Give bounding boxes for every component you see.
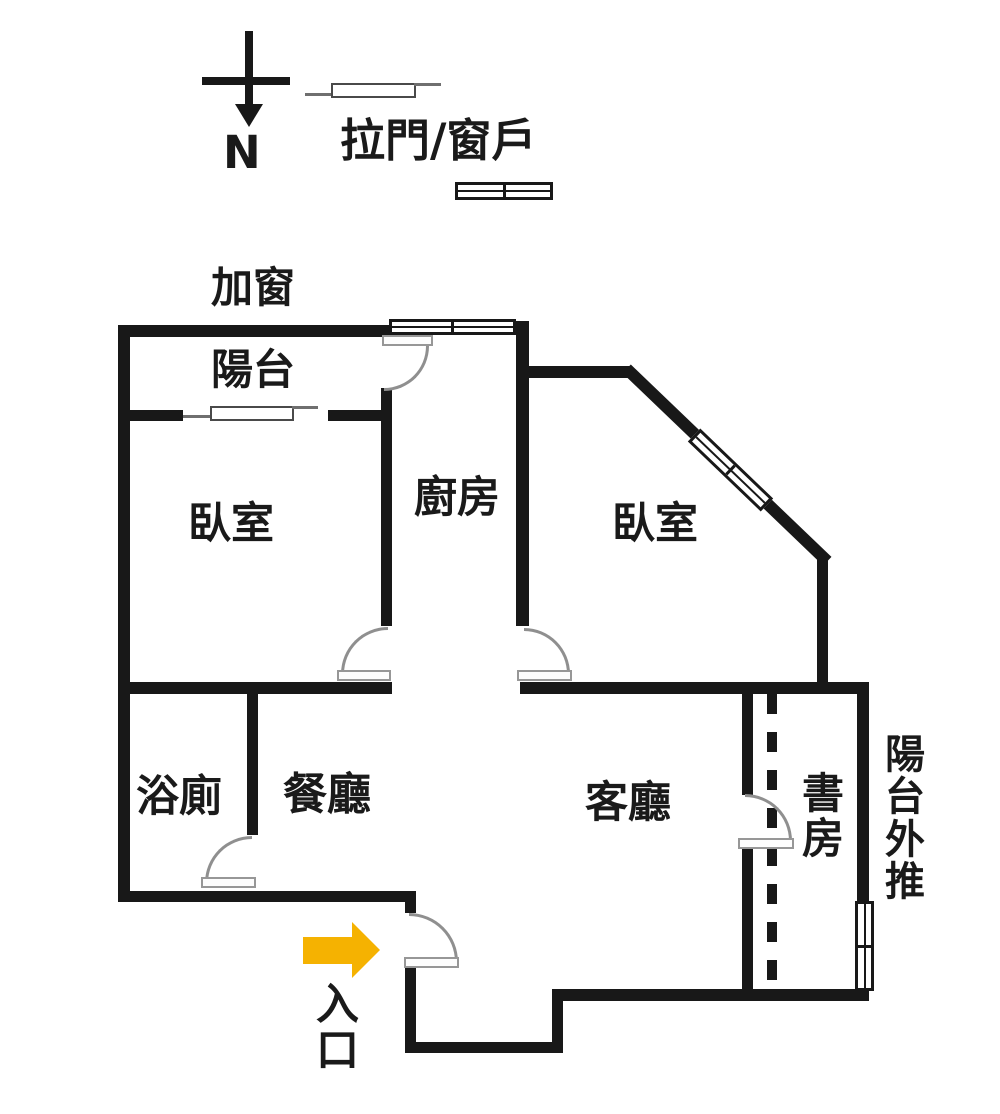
compass-arrowhead	[235, 104, 263, 127]
entrance-arrow-head	[352, 922, 380, 978]
window-top-symbol	[389, 319, 516, 335]
wall-bathroom-bottom	[118, 891, 416, 902]
wall-study-divider-lower	[742, 845, 753, 997]
window-diagonal-symbol	[688, 429, 773, 512]
wall-bathroom-divider	[247, 688, 258, 835]
sliding-door-legend-panel	[331, 83, 416, 98]
door-leaf-entrance	[404, 957, 459, 968]
wall-entry-lower	[405, 962, 416, 1053]
room-label-living: 客廳	[585, 782, 671, 825]
compass-vertical-line	[245, 31, 253, 105]
window-legend-symbol	[455, 182, 553, 200]
window-right-divider	[858, 945, 871, 948]
entrance-label: 入口	[316, 983, 364, 1074]
sliding-door-legend-track-line2	[414, 83, 441, 86]
door-leaf-balcony-kitchen	[382, 335, 433, 346]
window-legend-divider	[503, 185, 506, 197]
wall-balcony-bottom-left	[118, 410, 183, 421]
door-arc-bedroom-right	[524, 628, 570, 674]
door-leaf-bedroom-left	[337, 670, 391, 681]
legend-label: 拉門/窗戶	[340, 118, 536, 163]
compass-horizontal-line	[202, 77, 290, 85]
wall-exterior-top	[118, 325, 390, 337]
door-leaf-bedroom-right	[517, 670, 572, 681]
window-top-divider	[451, 322, 454, 332]
door-arc-bedroom-left	[341, 627, 388, 674]
room-label-balcony: 陽台	[211, 349, 295, 391]
room-label-bathroom: 浴廁	[136, 776, 222, 819]
balcony-slider-panel	[210, 406, 294, 421]
wall-study-right	[857, 688, 869, 904]
balcony-pushout-note: 陽台外推	[885, 734, 930, 904]
door-leaf-study	[738, 838, 794, 849]
wall-bottom-living	[410, 1042, 558, 1053]
wall-mid-right	[520, 682, 869, 694]
wall-bedroom-right-top	[523, 366, 632, 378]
door-arc-balcony-kitchen	[384, 346, 429, 391]
door-leaf-bathroom	[201, 877, 256, 888]
balcony-slider-track-line2	[292, 406, 318, 409]
room-label-study: 書房	[802, 772, 849, 861]
window-right-symbol	[855, 901, 874, 991]
added-window-note: 加窗	[211, 267, 295, 309]
wall-study-divider-upper	[742, 688, 753, 795]
wall-bedroom-right-side	[817, 557, 828, 692]
room-label-kitchen: 廚房	[414, 477, 500, 520]
floor-plan: N 拉門/窗戶 加窗	[0, 0, 1000, 1114]
room-label-bedroom-right: 臥室	[612, 503, 698, 546]
door-arc-entrance	[409, 913, 458, 962]
door-arc-study	[745, 794, 792, 841]
wall-bottom-right	[558, 989, 869, 1001]
room-label-bedroom-left: 臥室	[188, 503, 274, 546]
entrance-arrow-body	[303, 937, 354, 964]
compass-north-label: N	[223, 130, 261, 175]
door-arc-bathroom	[205, 836, 252, 883]
wall-kitchen-left	[381, 388, 392, 626]
room-label-dining: 餐廳	[283, 773, 371, 817]
